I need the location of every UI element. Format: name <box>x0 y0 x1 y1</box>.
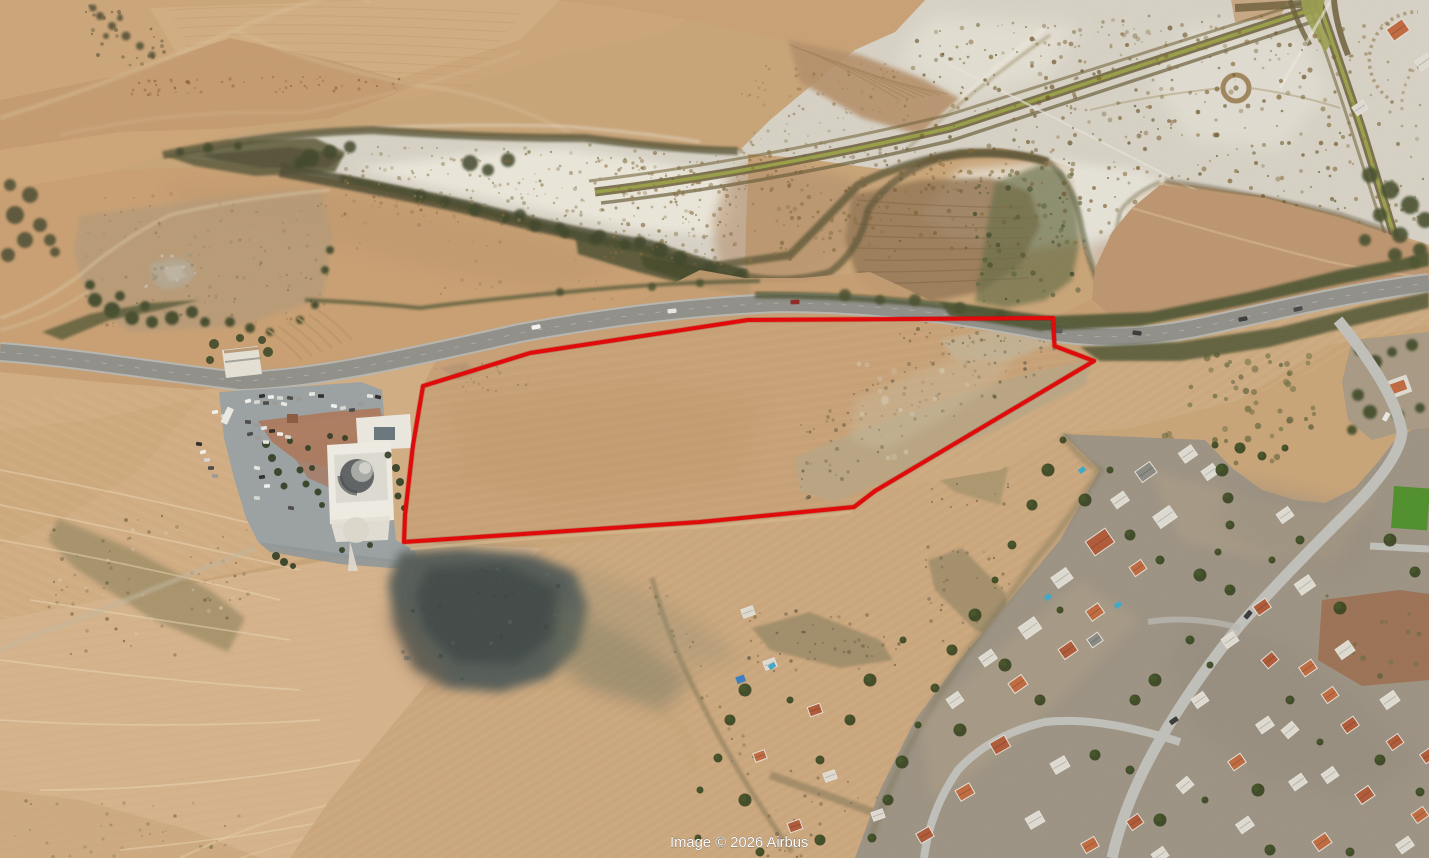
svg-text:Image © 2026 Airbus: Image © 2026 Airbus <box>670 835 808 851</box>
